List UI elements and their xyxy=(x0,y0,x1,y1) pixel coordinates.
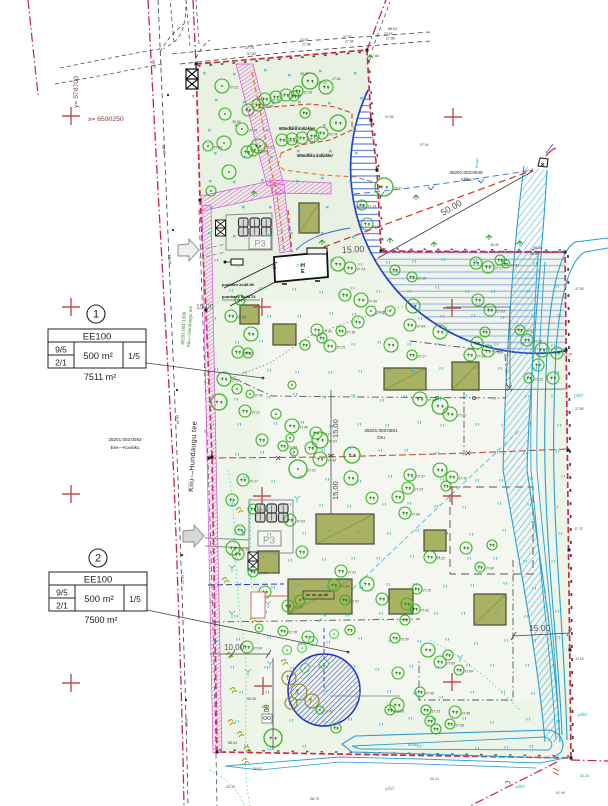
svg-text:37.99: 37.99 xyxy=(456,724,465,728)
svg-text:15.00: 15.00 xyxy=(342,244,365,255)
svg-text:1/5: 1/5 xyxy=(128,351,140,361)
svg-text:58.07: 58.07 xyxy=(253,767,262,771)
svg-text:37.48: 37.48 xyxy=(462,712,471,716)
svg-text:37.68: 37.68 xyxy=(426,692,435,696)
svg-text:37.60: 37.60 xyxy=(458,414,467,418)
svg-text:58.34: 58.34 xyxy=(175,415,180,424)
svg-text:37.73: 37.73 xyxy=(259,572,268,576)
svg-text:37.37: 37.37 xyxy=(266,146,275,150)
svg-text:37.33: 37.33 xyxy=(432,710,441,714)
svg-text:37.22: 37.22 xyxy=(437,557,446,561)
svg-text:37.63: 37.63 xyxy=(245,352,254,356)
svg-text:57.04: 57.04 xyxy=(420,143,429,147)
svg-text:37.17: 37.17 xyxy=(418,355,427,359)
svg-text:37.40: 37.40 xyxy=(255,394,264,398)
svg-text:37.82: 37.82 xyxy=(421,609,430,613)
svg-text:37.69: 37.69 xyxy=(447,662,456,666)
svg-text:15.00: 15.00 xyxy=(196,304,214,311)
svg-text:puukaev a=38.06: puukaev a=38.06 xyxy=(222,282,255,287)
svg-text:57.75: 57.75 xyxy=(245,46,254,50)
svg-text:37.41: 37.41 xyxy=(325,710,334,714)
svg-text:37.79: 37.79 xyxy=(357,268,366,272)
svg-text:37.84: 37.84 xyxy=(465,670,474,674)
svg-text:38.48: 38.48 xyxy=(490,243,499,247)
svg-text:15.00: 15.00 xyxy=(529,623,551,633)
svg-text:37.34: 37.34 xyxy=(341,585,350,589)
svg-text:37.18: 37.18 xyxy=(575,657,584,661)
svg-text:37.18: 37.18 xyxy=(423,589,432,593)
svg-text:37.56: 37.56 xyxy=(304,91,313,95)
svg-text:500 m²: 500 m² xyxy=(83,351,113,362)
svg-text:37.64: 37.64 xyxy=(254,647,263,651)
svg-text:37.18: 37.18 xyxy=(232,379,241,383)
svg-text:37.83: 37.83 xyxy=(329,440,338,444)
svg-text:15.00: 15.00 xyxy=(331,481,340,500)
svg-text:37.38: 37.38 xyxy=(564,353,573,357)
svg-text:Allika: Allika xyxy=(461,177,472,182)
svg-text:500 m²: 500 m² xyxy=(84,594,114,605)
svg-text:37.81: 37.81 xyxy=(526,330,535,334)
svg-text:37.91: 37.91 xyxy=(348,571,357,575)
svg-text:38.58: 38.58 xyxy=(232,120,241,124)
svg-text:37.80: 37.80 xyxy=(486,567,495,571)
svg-text:7511 m²: 7511 m² xyxy=(84,372,116,382)
svg-text:37.93: 37.93 xyxy=(214,146,223,150)
svg-text:põld: põld xyxy=(573,393,583,398)
svg-text:37.89: 37.89 xyxy=(259,509,268,513)
svg-text:57.87: 57.87 xyxy=(357,205,366,209)
svg-text:37.25: 37.25 xyxy=(337,346,346,350)
svg-text:2: 2 xyxy=(95,553,101,565)
svg-text:58.70: 58.70 xyxy=(310,797,319,801)
svg-text:58.43: 58.43 xyxy=(228,741,237,745)
svg-text:37.83: 37.83 xyxy=(297,520,306,524)
svg-text:37.74: 37.74 xyxy=(329,133,338,137)
svg-text:Oru: Oru xyxy=(377,435,385,440)
svg-text:37.47: 37.47 xyxy=(511,264,520,268)
svg-text:37.14: 37.14 xyxy=(368,205,377,209)
svg-text:27.84: 27.84 xyxy=(331,77,341,81)
svg-text:55.00: 55.00 xyxy=(247,697,256,701)
svg-text:E: E xyxy=(301,269,305,275)
svg-text:15.00: 15.00 xyxy=(331,419,340,438)
svg-text:kraav: kraav xyxy=(474,157,479,168)
svg-text:20.72: 20.72 xyxy=(226,785,235,789)
svg-text:27.97: 27.97 xyxy=(343,35,352,39)
svg-text:1/5: 1/5 xyxy=(129,594,141,604)
svg-text:37.58: 37.58 xyxy=(575,287,584,291)
svg-text:37.56: 37.56 xyxy=(396,710,405,714)
svg-text:37.33: 37.33 xyxy=(459,477,468,481)
svg-text:y= 578700: y= 578700 xyxy=(73,76,80,108)
svg-text:37.60: 37.60 xyxy=(260,150,269,154)
svg-text:37.78: 37.78 xyxy=(265,105,274,109)
svg-text:37.78: 37.78 xyxy=(574,527,583,531)
svg-text:61.98: 61.98 xyxy=(556,791,565,795)
svg-text:2/1: 2/1 xyxy=(55,358,67,368)
svg-text:35201:003:0551: 35201:003:0551 xyxy=(364,428,398,433)
svg-text:37.21: 37.21 xyxy=(252,411,261,415)
svg-text:37.90: 37.90 xyxy=(377,311,386,315)
svg-text:Mändliku kallakler: Mändliku kallakler xyxy=(279,126,315,131)
svg-text:2/1: 2/1 xyxy=(56,601,68,611)
svg-text:37.27: 37.27 xyxy=(495,267,504,271)
svg-text:37.57: 37.57 xyxy=(351,600,360,604)
svg-text:27.98: 27.98 xyxy=(386,37,395,41)
svg-text:37.17: 37.17 xyxy=(250,480,259,484)
svg-text:37.51: 37.51 xyxy=(230,86,239,90)
svg-text:10.00: 10.00 xyxy=(224,643,245,652)
svg-text:x= 6590250: x= 6590250 xyxy=(88,116,124,123)
svg-text:EE100: EE100 xyxy=(84,575,113,586)
svg-text:9/5: 9/5 xyxy=(56,588,68,598)
svg-text:põld: põld xyxy=(515,784,525,789)
svg-text:27.97: 27.97 xyxy=(300,38,309,42)
svg-text:37.65: 37.65 xyxy=(238,316,247,320)
svg-text:27.98: 27.98 xyxy=(302,43,311,47)
svg-text:88.04: 88.04 xyxy=(388,27,397,31)
svg-text:P3: P3 xyxy=(254,239,265,249)
svg-text:37.90: 37.90 xyxy=(369,300,378,304)
svg-text:37.22: 37.22 xyxy=(319,81,328,85)
svg-text:57.84: 57.84 xyxy=(385,115,394,119)
svg-text:27.94: 27.94 xyxy=(345,40,354,44)
svg-text:kraav: kraav xyxy=(408,742,419,747)
svg-text:37.84: 37.84 xyxy=(289,140,298,144)
svg-text:37.28: 37.28 xyxy=(495,351,504,355)
svg-text:37.16: 37.16 xyxy=(534,340,543,344)
svg-text:37.15: 37.15 xyxy=(535,378,544,382)
svg-text:7500 m²: 7500 m² xyxy=(84,615,117,625)
svg-text:37.16: 37.16 xyxy=(272,99,281,103)
svg-text:35201:003:0549: 35201:003:0549 xyxy=(449,170,483,175)
svg-text:27.97: 27.97 xyxy=(384,32,393,36)
svg-text:37.38: 37.38 xyxy=(347,331,356,335)
svg-text:37.82: 37.82 xyxy=(324,330,333,334)
svg-text:Ees—Koosiku: Ees—Koosiku xyxy=(111,445,140,450)
svg-text:EE100: EE100 xyxy=(83,332,112,343)
svg-text:57.52: 57.52 xyxy=(247,52,256,56)
svg-text:37.88: 37.88 xyxy=(575,407,584,411)
svg-text:37.19: 37.19 xyxy=(293,95,302,99)
svg-text:62.23: 62.23 xyxy=(580,774,589,778)
svg-text:37.49: 37.49 xyxy=(328,459,337,463)
svg-text:37.50: 37.50 xyxy=(401,638,410,642)
svg-text:37.84: 37.84 xyxy=(428,399,437,403)
svg-text:37.21: 37.21 xyxy=(394,187,403,191)
svg-text:1: 1 xyxy=(93,309,99,321)
svg-text:37.84: 37.84 xyxy=(417,325,426,329)
svg-text:37.23: 37.23 xyxy=(415,488,424,492)
svg-text:57.67: 57.67 xyxy=(372,225,381,229)
svg-text:37.81: 37.81 xyxy=(308,469,317,473)
svg-text:37.17: 37.17 xyxy=(309,138,318,142)
svg-text:38.48: 38.48 xyxy=(533,246,542,250)
svg-text:37.84: 37.84 xyxy=(412,513,421,517)
svg-text:58.13: 58.13 xyxy=(430,777,439,781)
svg-text:37.64: 37.64 xyxy=(289,446,298,450)
svg-text:põld: põld xyxy=(384,786,394,791)
svg-text:Mändliku kallakler: Mändliku kallakler xyxy=(297,153,333,158)
svg-text:58.03: 58.03 xyxy=(180,575,184,584)
svg-text:38.07: 38.07 xyxy=(300,72,309,76)
svg-text:põld: põld xyxy=(577,712,587,717)
svg-text:37.83: 37.83 xyxy=(477,355,486,359)
svg-text:puurkaev k=48.74: puurkaev k=48.74 xyxy=(222,294,256,299)
svg-text:37.29: 37.29 xyxy=(249,129,258,133)
svg-text:37.97: 37.97 xyxy=(295,606,304,610)
svg-text:P3: P3 xyxy=(263,536,276,547)
svg-text:37.97: 37.97 xyxy=(417,475,426,479)
svg-text:39.37: 39.37 xyxy=(184,718,188,727)
svg-text:9/5: 9/5 xyxy=(55,345,67,355)
svg-text:37.36: 37.36 xyxy=(241,548,250,552)
svg-text:37.25: 37.25 xyxy=(418,277,427,281)
svg-text:37.63: 37.63 xyxy=(497,310,506,314)
svg-text:37.80: 37.80 xyxy=(300,426,309,430)
svg-text:37.78: 37.78 xyxy=(289,631,298,635)
svg-text:35201:003:0083: 35201:003:0083 xyxy=(108,437,142,442)
svg-text:37.17: 37.17 xyxy=(323,433,332,437)
